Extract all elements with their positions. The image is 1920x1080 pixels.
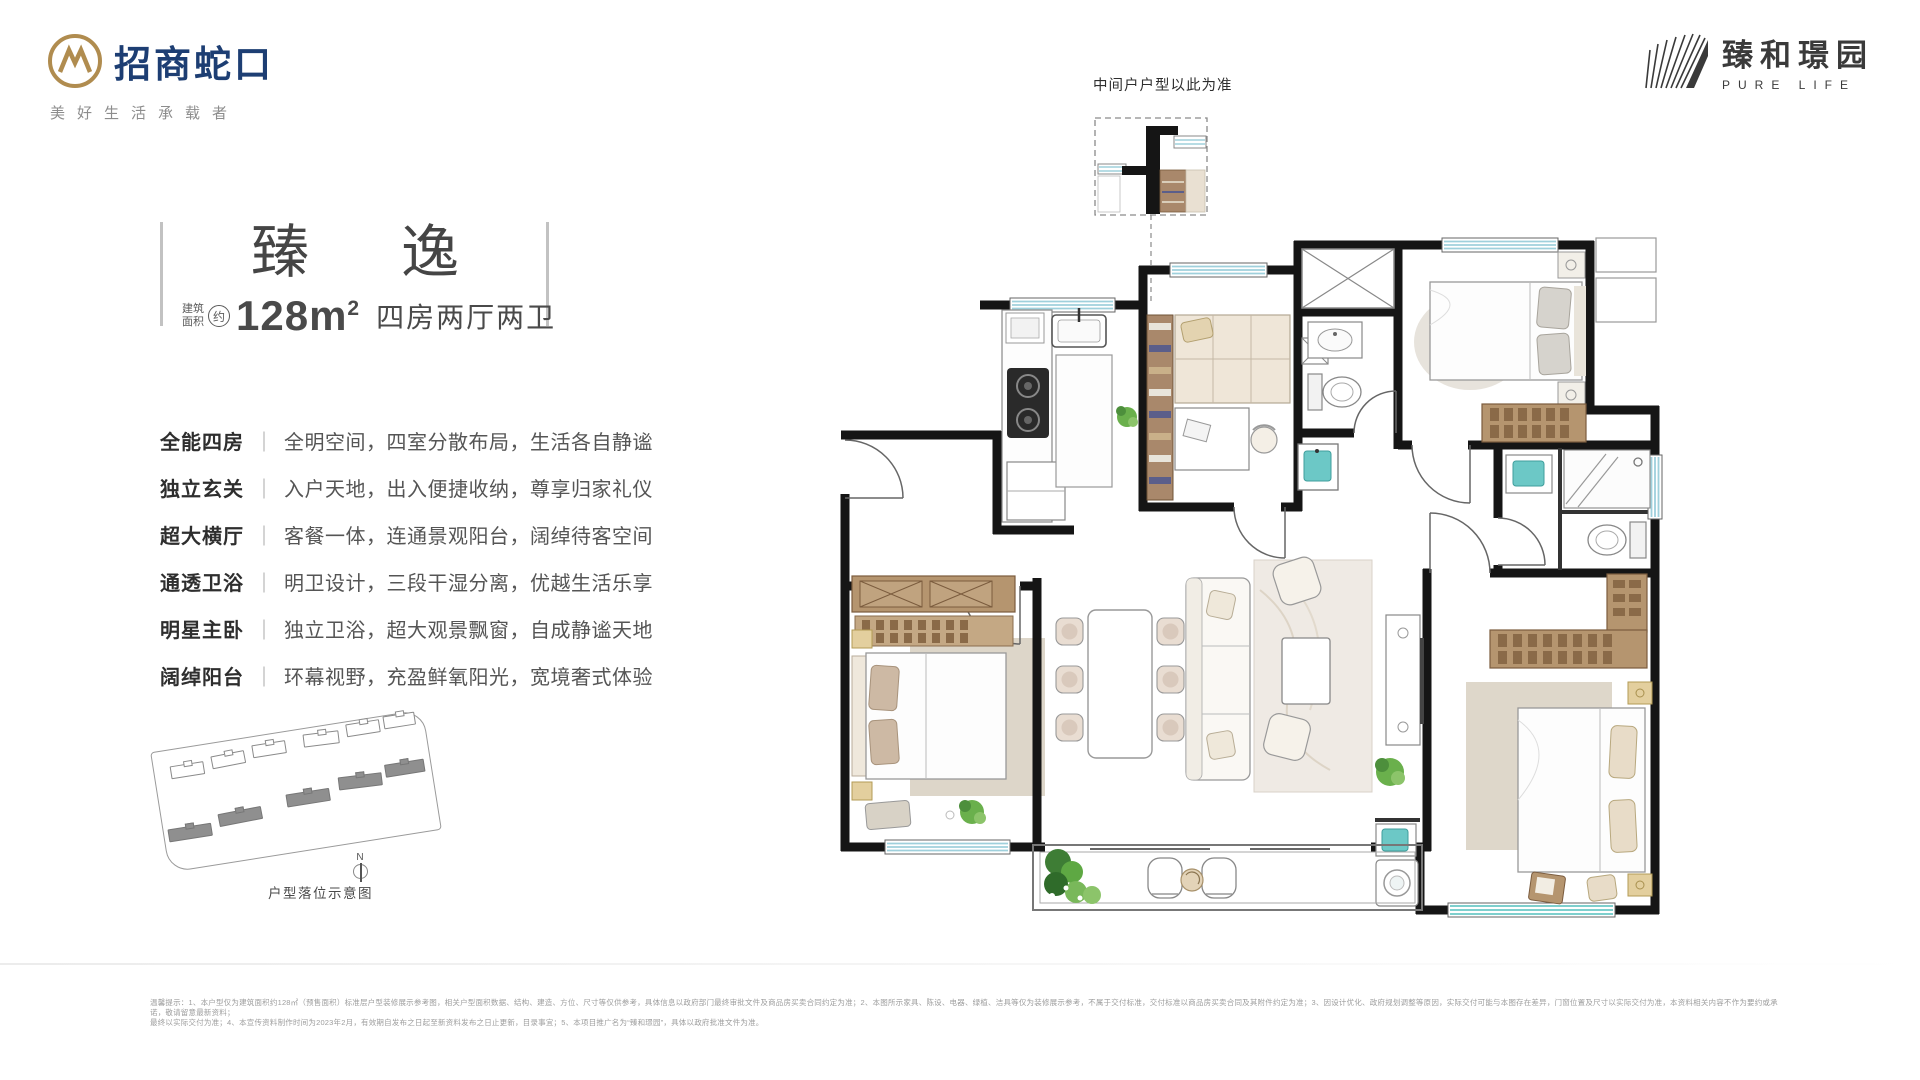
brand-logo: 招商蛇口 bbox=[46, 32, 274, 90]
hall-washbasin bbox=[1298, 444, 1338, 490]
unit-title: 臻 逸 bbox=[205, 205, 505, 289]
pillow bbox=[1537, 333, 1572, 375]
cooktop bbox=[1007, 368, 1049, 438]
feature-row: 独立玄关｜入户天地，出入便捷收纳，尊享归家礼仪 bbox=[160, 475, 653, 499]
nightstand bbox=[852, 630, 872, 648]
master-door bbox=[1430, 513, 1490, 573]
nightstand bbox=[852, 782, 872, 800]
bay-box-1 bbox=[1596, 238, 1656, 272]
brand-tagline: 美好生活承载者 bbox=[50, 102, 239, 123]
pillow bbox=[1206, 730, 1236, 760]
building-highlight bbox=[338, 772, 383, 790]
feature-row: 阔绰阳台｜环幕视野，充盈鲜氧阳光，宽境奢式体验 bbox=[160, 663, 653, 687]
window-master-teal bbox=[1448, 903, 1615, 917]
pillow bbox=[1206, 590, 1237, 621]
building-outline bbox=[251, 740, 287, 758]
study-door bbox=[1234, 507, 1285, 558]
project-subtitle: PURE LIFE bbox=[1722, 78, 1874, 92]
balcony-plants bbox=[1044, 849, 1101, 904]
project-name: 臻和璟园 bbox=[1722, 30, 1874, 75]
laundry-sink bbox=[1382, 829, 1408, 851]
study-room bbox=[1147, 315, 1290, 500]
bench bbox=[865, 800, 911, 830]
dining bbox=[1056, 610, 1184, 758]
foyer bbox=[946, 811, 954, 819]
brand-name: 招商蛇口 bbox=[114, 34, 274, 88]
balcony-chair bbox=[1148, 858, 1182, 898]
feature-row: 全能四房｜全明空间，四室分散布局，生活各自静谧 bbox=[160, 428, 653, 452]
desk-chair bbox=[1251, 427, 1277, 453]
desk bbox=[1175, 408, 1249, 470]
pillow bbox=[868, 719, 899, 765]
window-bedroom-top bbox=[1442, 238, 1558, 252]
dining-table bbox=[1088, 610, 1152, 758]
area-value: 128m2 bbox=[236, 292, 360, 340]
tv bbox=[1420, 638, 1424, 724]
area-approx-badge: 约 bbox=[208, 305, 230, 327]
bath-small bbox=[1308, 322, 1362, 410]
pillow bbox=[1536, 287, 1571, 330]
unit-title-char1: 臻 bbox=[251, 205, 309, 289]
area-row: 建筑 面积 约 128m2 四房两厅两卫 bbox=[182, 292, 556, 340]
feature-row: 明星主卧｜独立卫浴，超大观景飘窗，自成静谧天地 bbox=[160, 616, 653, 640]
balcony-chair bbox=[1202, 858, 1236, 898]
fan-icon bbox=[1642, 30, 1708, 92]
kitchen-island bbox=[1056, 355, 1112, 487]
building-outline bbox=[170, 761, 206, 779]
pillow bbox=[1609, 725, 1638, 778]
disclaimer: 温馨提示：1、本户型仅为建筑面积约128㎡（预售面积）标准层户型装修展示参考图，… bbox=[150, 998, 1790, 1028]
building-outline bbox=[303, 730, 340, 747]
area-prefix: 建筑 面积 bbox=[182, 303, 204, 329]
bath-master bbox=[1506, 450, 1650, 558]
bedroom-top-door bbox=[1412, 445, 1470, 503]
building-outline bbox=[345, 719, 381, 737]
project-names: 臻和璟园 PURE LIFE bbox=[1722, 30, 1874, 92]
nightstand bbox=[1558, 252, 1585, 278]
building-highlight bbox=[285, 788, 330, 808]
compass: N bbox=[350, 852, 370, 879]
site-boundary bbox=[150, 709, 442, 873]
nightstand bbox=[1628, 682, 1652, 704]
bay-box-2 bbox=[1596, 278, 1656, 322]
feature-row: 超大横厅｜客餐一体，连通景观阳台，阔绰待客空间 bbox=[160, 522, 653, 546]
bottom-divider bbox=[0, 963, 1920, 965]
brand-mark-icon bbox=[46, 32, 104, 90]
compass-needle bbox=[353, 864, 368, 879]
site-map-caption: 户型落位示意图 bbox=[268, 882, 373, 902]
tv-cabinet bbox=[1386, 615, 1420, 745]
building-highlight bbox=[167, 823, 212, 843]
bookshelf bbox=[1147, 315, 1173, 500]
building-outline bbox=[382, 712, 416, 730]
kitchen bbox=[1002, 308, 1138, 522]
toilet-master bbox=[1588, 525, 1626, 555]
unit-title-char2: 逸 bbox=[401, 205, 459, 289]
project-logo: 臻和璟园 PURE LIFE bbox=[1642, 30, 1874, 92]
building-highlight bbox=[384, 759, 426, 778]
window-bedroom-left bbox=[885, 840, 1010, 854]
floor-cushion bbox=[1586, 874, 1617, 902]
plan-note: 中间户户型以此为准 bbox=[1093, 74, 1233, 95]
page: 招商蛇口 美好生活承载者 臻和璟园 PURE LIFE 臻 逸 bbox=[0, 0, 1920, 1080]
pillow bbox=[868, 665, 899, 711]
feature-row: 通透卫浴｜明卫设计，三段干湿分离，优越生活乐享 bbox=[160, 569, 653, 593]
layout-text: 四房两厅两卫 bbox=[376, 296, 556, 336]
utility-nook bbox=[1376, 824, 1418, 906]
site-map: N 户型落位示意图 bbox=[150, 714, 460, 909]
living-room bbox=[1186, 555, 1424, 786]
pillow bbox=[1609, 799, 1638, 852]
nightstand bbox=[1628, 874, 1652, 896]
coffee-table bbox=[1282, 638, 1330, 704]
toilet bbox=[1323, 377, 1361, 407]
building-highlight bbox=[217, 806, 263, 827]
feature-list: 全能四房｜全明空间，四室分散布局，生活各自静谧 独立玄关｜入户天地，出入便捷收纳… bbox=[160, 428, 653, 687]
disclaimer-line2: 最终以实际交付为准；4、本宣传资料制作时间为2023年2月，有效期自发布之日起至… bbox=[150, 1018, 1167, 1028]
bedroom-top-right bbox=[1430, 252, 1586, 442]
entry-door-arc bbox=[845, 440, 903, 498]
window-study bbox=[1170, 263, 1267, 277]
bath-master-door bbox=[1498, 518, 1545, 565]
building-outline bbox=[210, 750, 246, 769]
title-bar-left bbox=[160, 222, 163, 326]
disclaimer-line1: 温馨提示：1、本户型仅为建筑面积约128㎡（预售面积）标准层户型装修展示参考图，… bbox=[150, 998, 1790, 1018]
balcony bbox=[1033, 845, 1422, 910]
floor-plan bbox=[830, 110, 1680, 925]
